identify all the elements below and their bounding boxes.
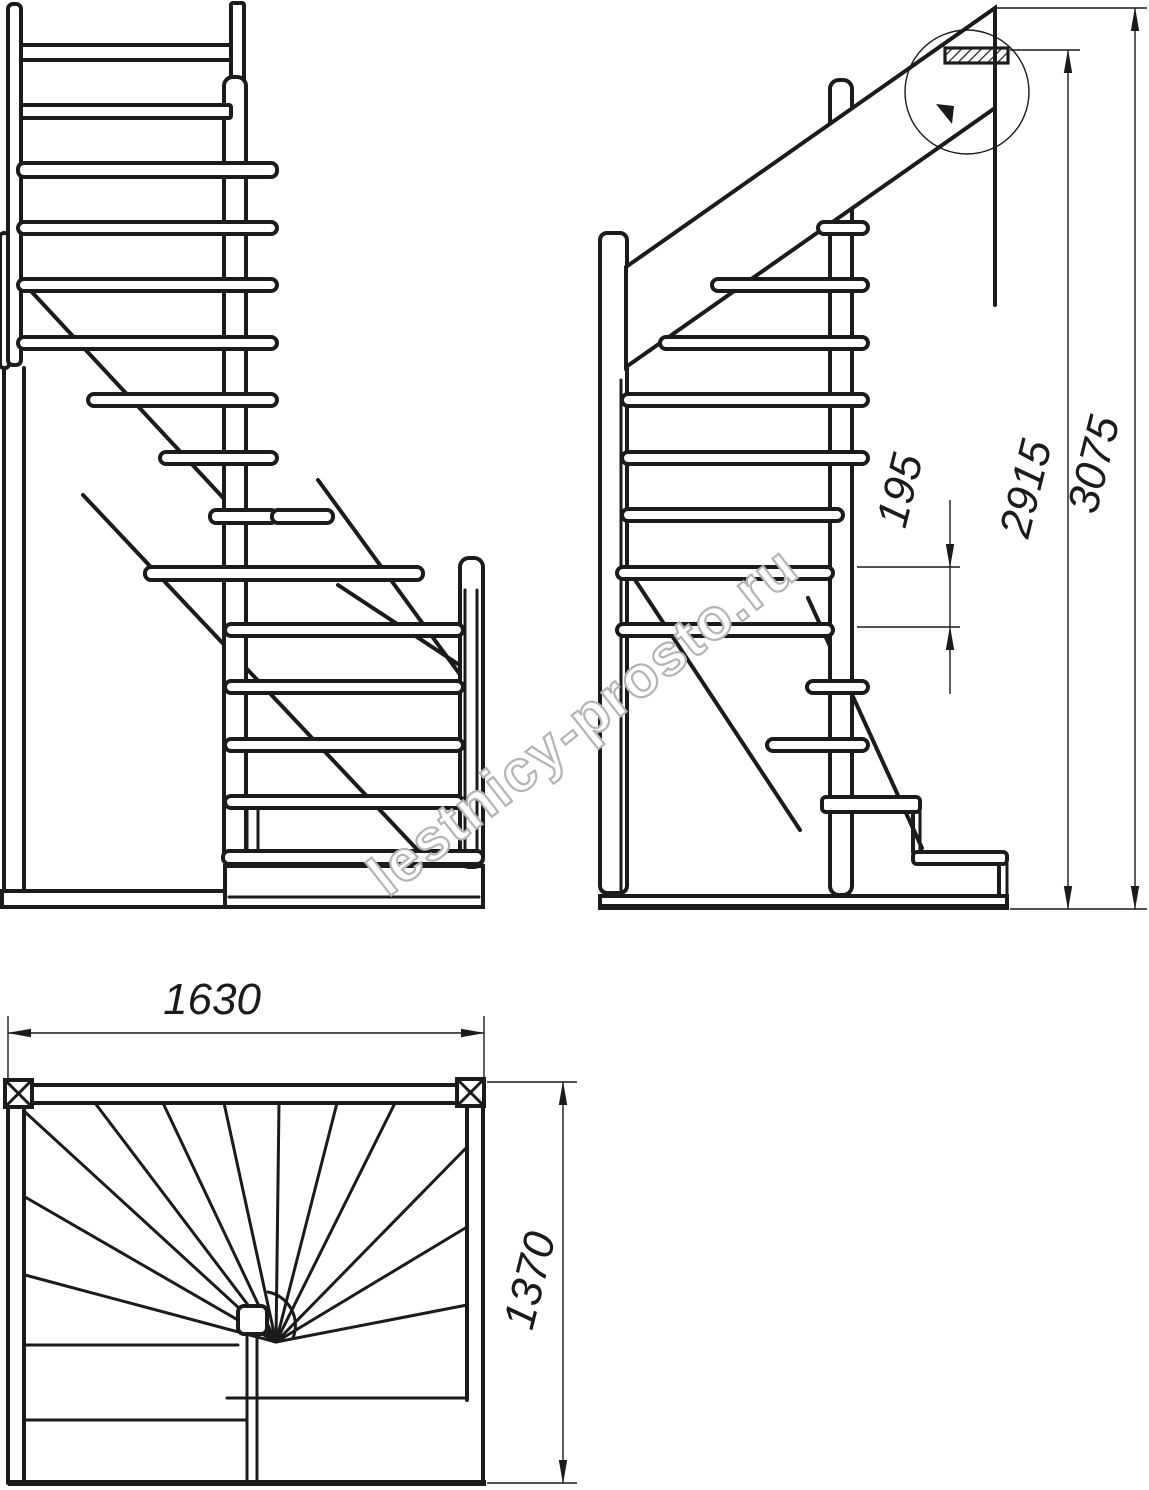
tread: [807, 681, 868, 693]
stringer-band: [626, 8, 995, 367]
tread: [622, 452, 868, 464]
tread: [272, 510, 333, 523]
tread: [225, 681, 463, 693]
tread: [18, 337, 277, 349]
rail: [21, 105, 231, 118]
tread: [767, 739, 868, 751]
watermark: lestnicy-prosto.ru: [356, 533, 810, 908]
tread: [225, 624, 463, 636]
base-box: [225, 866, 483, 907]
corner-post-section: [5, 1080, 32, 1107]
plan-view: 1630 1370: [5, 975, 577, 1483]
dim-label-step-rise: 195: [867, 448, 932, 532]
base-strip: [2, 891, 225, 907]
tread-edge: [276, 1103, 279, 1342]
handrail: [21, 45, 231, 60]
tread-edge: [276, 1103, 337, 1342]
tread: [18, 163, 277, 177]
dim-label-height-to-landing: 2915: [990, 435, 1062, 543]
front-elevation-view: [0, 3, 483, 907]
tread: [160, 452, 277, 464]
tread: [18, 279, 277, 291]
tread: [225, 739, 463, 751]
tread: [88, 394, 277, 406]
corner-post-section: [457, 1079, 484, 1106]
tread: [18, 222, 277, 234]
newel-post: [600, 233, 627, 893]
technical-drawing: 195 2915 3075: [0, 0, 1149, 1490]
tread: [145, 567, 423, 580]
dim-label-plan-width: 1630: [163, 975, 261, 1024]
tread: [622, 509, 843, 521]
side-elevation-view: 195 2915 3075: [600, 8, 1147, 909]
step-tread: [822, 797, 920, 812]
tread: [818, 222, 868, 234]
tread: [622, 394, 868, 406]
tread: [210, 510, 277, 523]
tread: [660, 337, 868, 349]
staircase-blueprint: 195 2915 3075: [0, 0, 1149, 1490]
dim-label-total-height: 3075: [1058, 411, 1129, 518]
tread: [712, 279, 868, 291]
center-newel-post: [238, 1306, 267, 1334]
step-tread: [913, 852, 1007, 864]
floor-section-hatch: [945, 48, 1008, 63]
dim-label-plan-depth: 1370: [494, 1227, 565, 1334]
